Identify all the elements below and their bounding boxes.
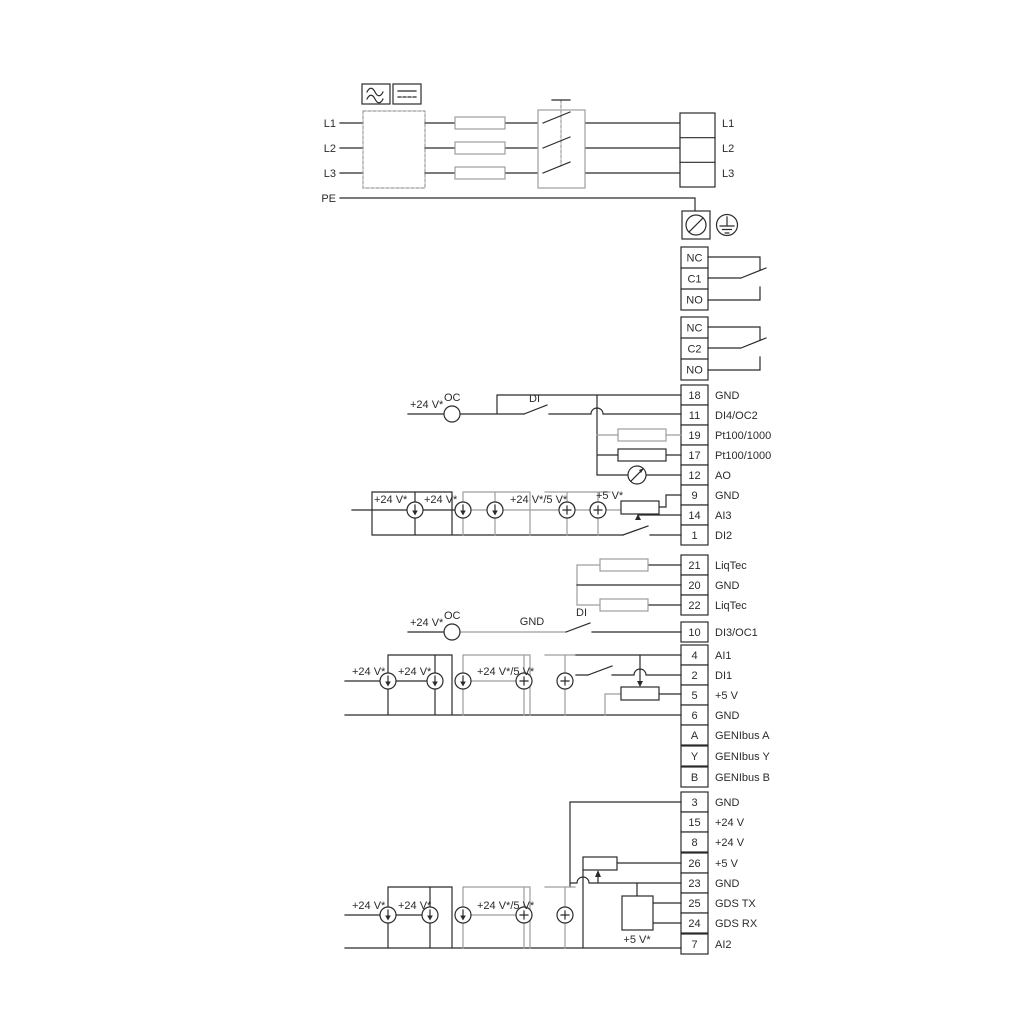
ai1-supply2-label: +24 V* [398, 666, 432, 678]
ai3-supply3-label: +24 V*/5 V* [510, 494, 568, 506]
svg-text:DI1: DI1 [715, 670, 732, 682]
liqtec-block: 21 LiqTec 20 GND 22 LiqTec [577, 555, 747, 615]
svg-text:GND: GND [715, 580, 740, 592]
terminal-row: 8 +24 V [681, 832, 745, 852]
ai1-supply1-label: +24 V* [352, 666, 386, 678]
current-source-icon [487, 502, 503, 518]
ai3-wiring: +24 V* +24 V* +24 V*/5 V* +5 V* [352, 490, 681, 535]
current-source-icon [407, 502, 423, 518]
di1-switch [588, 666, 612, 675]
ai3-supply4-label: +5 V* [596, 490, 624, 502]
terminal-row: 14 AI3 [681, 505, 732, 525]
terminal-row: 23 GND [681, 873, 740, 893]
svg-text:AI3: AI3 [715, 510, 732, 522]
di3-di-label: DI [576, 607, 587, 619]
voltage-source-icon [557, 673, 573, 689]
svg-text:GDS TX: GDS TX [715, 898, 756, 910]
relay2-no: NO [686, 365, 703, 377]
fuse-l3 [455, 167, 505, 179]
di4-switch [524, 405, 547, 414]
svg-text:21: 21 [688, 560, 700, 572]
svg-text:LiqTec: LiqTec [715, 600, 747, 612]
svg-text:18: 18 [688, 390, 700, 402]
current-source-icon [455, 907, 471, 923]
terminal-block2: 10 DI3/OC1 4 AI1 2 DI1 5 +5 V 6 GND A GE… [681, 622, 770, 787]
svg-text:AO: AO [715, 470, 731, 482]
svg-text:Y: Y [691, 751, 699, 763]
terminal-row: 15 +24 V [681, 812, 745, 832]
relay1-block: NC C1 NO [681, 247, 766, 310]
potentiometer [621, 687, 659, 700]
liqtec-sensor-resistor [600, 599, 648, 611]
mains-terminal-block: L1 L2 L3 [680, 113, 734, 187]
terminal-row: Y GENIbus Y [681, 746, 770, 766]
svg-text:4: 4 [691, 650, 697, 662]
current-source-icon [455, 673, 471, 689]
svg-text:2: 2 [691, 670, 697, 682]
svg-text:DI3/OC1: DI3/OC1 [715, 627, 758, 639]
svg-text:GENIbus B: GENIbus B [715, 772, 770, 784]
gds-sensor-box [622, 896, 653, 930]
terminal-row: 21 LiqTec [681, 555, 747, 575]
svg-text:B: B [691, 772, 698, 784]
terminal-row: 24 GDS RX [681, 913, 758, 933]
svg-text:23: 23 [688, 878, 700, 890]
terminal-row: 12 AO [681, 465, 731, 485]
svg-text:1: 1 [691, 530, 697, 542]
svg-text:26: 26 [688, 858, 700, 870]
output-label-l3: L3 [722, 168, 734, 180]
terminal-row: 19 Pt100/1000 [681, 425, 771, 445]
di3-supply-label: +24 V* [410, 617, 444, 629]
relay1-c1: C1 [687, 274, 701, 286]
terminal-row: 10 DI3/OC1 [681, 622, 758, 642]
power-section: L1 L2 L3 PE L [321, 84, 737, 239]
di4-di-label: DI [529, 393, 540, 405]
screw-terminal-icon [682, 211, 710, 239]
frequency-converter-box [363, 111, 425, 188]
relay2-nc: NC [687, 323, 703, 335]
svg-text:3: 3 [691, 797, 697, 809]
ai2-supply2-label: +24 V* [398, 900, 432, 912]
svg-text:+24 V: +24 V [715, 817, 745, 829]
open-collector-icon [444, 624, 460, 640]
svg-text:AI2: AI2 [715, 939, 732, 951]
di3-wiring: +24 V* OC GND DI [408, 607, 681, 640]
ai2-supply1-label: +24 V* [352, 900, 386, 912]
svg-text:9: 9 [691, 490, 697, 502]
disconnect-switch [538, 100, 585, 188]
terminal-row: 25 GDS TX [681, 893, 756, 913]
di4-supply-label: +24 V* [410, 399, 444, 411]
pt100-sensor-resistor [618, 449, 666, 461]
svg-text:11: 11 [689, 410, 700, 422]
ai3-supply1-label: +24 V* [374, 494, 408, 506]
svg-text:GND: GND [715, 710, 740, 722]
di2-switch [623, 526, 648, 535]
relay2-contact [708, 327, 766, 370]
ai2-wiring: +24 V* +24 V* +24 V*/5 V* +5 V* [345, 802, 681, 948]
fuse-l1 [455, 117, 505, 129]
terminal-row: 22 LiqTec [681, 595, 747, 615]
terminal-row: 3 GND [681, 792, 740, 812]
pe-label: PE [321, 193, 336, 205]
svg-text:DI4/OC2: DI4/OC2 [715, 410, 758, 422]
wiring-diagram: L1 L2 L3 PE L [0, 0, 1024, 1024]
ai1-supply3-label: +24 V*/5 V* [477, 666, 535, 678]
svg-text:AI1: AI1 [715, 650, 732, 662]
di3-oc-label: OC [444, 610, 461, 622]
svg-text:GDS RX: GDS RX [715, 918, 758, 930]
terminal-row: 9 GND [681, 485, 740, 505]
block1-wiring: +24 V* OC DI [408, 392, 681, 484]
svg-text:10: 10 [688, 627, 700, 639]
svg-text:17: 17 [688, 450, 700, 462]
ai2-supply3-label: +24 V*/5 V* [477, 900, 535, 912]
svg-text:7: 7 [691, 939, 697, 951]
terminal-row: 26 +5 V [681, 853, 739, 873]
svg-text:+24 V: +24 V [715, 837, 745, 849]
svg-text:DI2: DI2 [715, 530, 732, 542]
terminal-row: 18 GND [681, 385, 740, 405]
liqtec-sensor-resistor [600, 559, 648, 571]
analog-output-meter-icon [628, 466, 646, 484]
voltage-source-icon [590, 502, 606, 518]
open-collector-icon [444, 406, 460, 422]
svg-text:Pt100/1000: Pt100/1000 [715, 450, 771, 462]
svg-text:LiqTec: LiqTec [715, 560, 747, 572]
terminal-row: B GENIbus B [681, 767, 770, 787]
dc-symbol-icon [393, 84, 421, 104]
current-source-icon [455, 502, 471, 518]
wiper-arrow [637, 681, 643, 687]
svg-text:24: 24 [688, 918, 700, 930]
input-label-l2: L2 [324, 143, 336, 155]
svg-text:GND: GND [715, 878, 740, 890]
mains-wires [340, 123, 695, 211]
relay1-no: NO [686, 295, 703, 307]
svg-text:GENIbus A: GENIbus A [715, 730, 770, 742]
terminal-row: 7 AI2 [681, 934, 732, 954]
svg-text:14: 14 [688, 510, 700, 522]
terminal-row: 6 GND [681, 705, 740, 725]
svg-text:Pt100/1000: Pt100/1000 [715, 430, 771, 442]
di4-oc-label: OC [444, 392, 461, 404]
svg-text:+5 V: +5 V [715, 690, 739, 702]
fuse-l2 [455, 142, 505, 154]
svg-text:8: 8 [691, 837, 697, 849]
svg-text:+5 V: +5 V [715, 858, 739, 870]
svg-text:25: 25 [688, 898, 700, 910]
svg-text:15: 15 [688, 817, 700, 829]
svg-text:19: 19 [688, 430, 700, 442]
terminal-row: 5 +5 V [681, 685, 739, 705]
input-label-l3: L3 [324, 168, 336, 180]
svg-text:GENIbus Y: GENIbus Y [715, 751, 770, 763]
svg-text:22: 22 [688, 600, 700, 612]
terminal-row: A GENIbus A [681, 725, 770, 745]
voltage-source-icon [557, 907, 573, 923]
terminal-row: 11 DI4/OC2 [681, 405, 758, 425]
ac-waveform-icon [362, 84, 390, 104]
ai3-supply2-label: +24 V* [424, 494, 458, 506]
relay2-c2: C2 [687, 344, 701, 356]
terminal-row: 20 GND [681, 575, 740, 595]
relay2-block: NC C2 NO [681, 317, 766, 380]
output-label-l1: L1 [722, 118, 734, 130]
svg-text:GND: GND [715, 797, 740, 809]
earth-ground-icon [717, 215, 738, 236]
terminal-block1: 18 GND 11 DI4/OC2 19 Pt100/1000 17 Pt100… [681, 385, 771, 545]
svg-text:20: 20 [688, 580, 700, 592]
wiring-diagram-page: L1 L2 L3 PE L [0, 0, 1024, 1024]
potentiometer [621, 501, 659, 520]
svg-text:A: A [691, 730, 699, 742]
terminal-row: 4 AI1 [681, 645, 732, 665]
output-label-l2: L2 [722, 143, 734, 155]
terminal-row: 1 DI2 [681, 525, 732, 545]
svg-text:GND: GND [715, 390, 740, 402]
di3-switch [566, 623, 590, 632]
relay1-nc: NC [687, 253, 703, 265]
ai1-wiring: +24 V* +24 V* +24 V*/5 V* [345, 655, 681, 715]
relay1-contact [708, 257, 766, 300]
terminal-row: 17 Pt100/1000 [681, 445, 771, 465]
wiper-arrow [595, 870, 601, 877]
svg-text:5: 5 [691, 690, 697, 702]
terminal-block3: 3 GND 15 +24 V 8 +24 V 26 +5 V 23 GND 25… [681, 792, 758, 954]
terminal-row: 2 DI1 [681, 665, 732, 685]
svg-text:6: 6 [691, 710, 697, 722]
di3-gnd-label: GND [520, 616, 545, 628]
svg-text:12: 12 [688, 470, 700, 482]
ai2-supply4-label: +5 V* [623, 934, 651, 946]
potentiometer [583, 857, 617, 870]
pt100-sensor-resistor [618, 429, 666, 441]
input-label-l1: L1 [324, 118, 336, 130]
svg-text:GND: GND [715, 490, 740, 502]
